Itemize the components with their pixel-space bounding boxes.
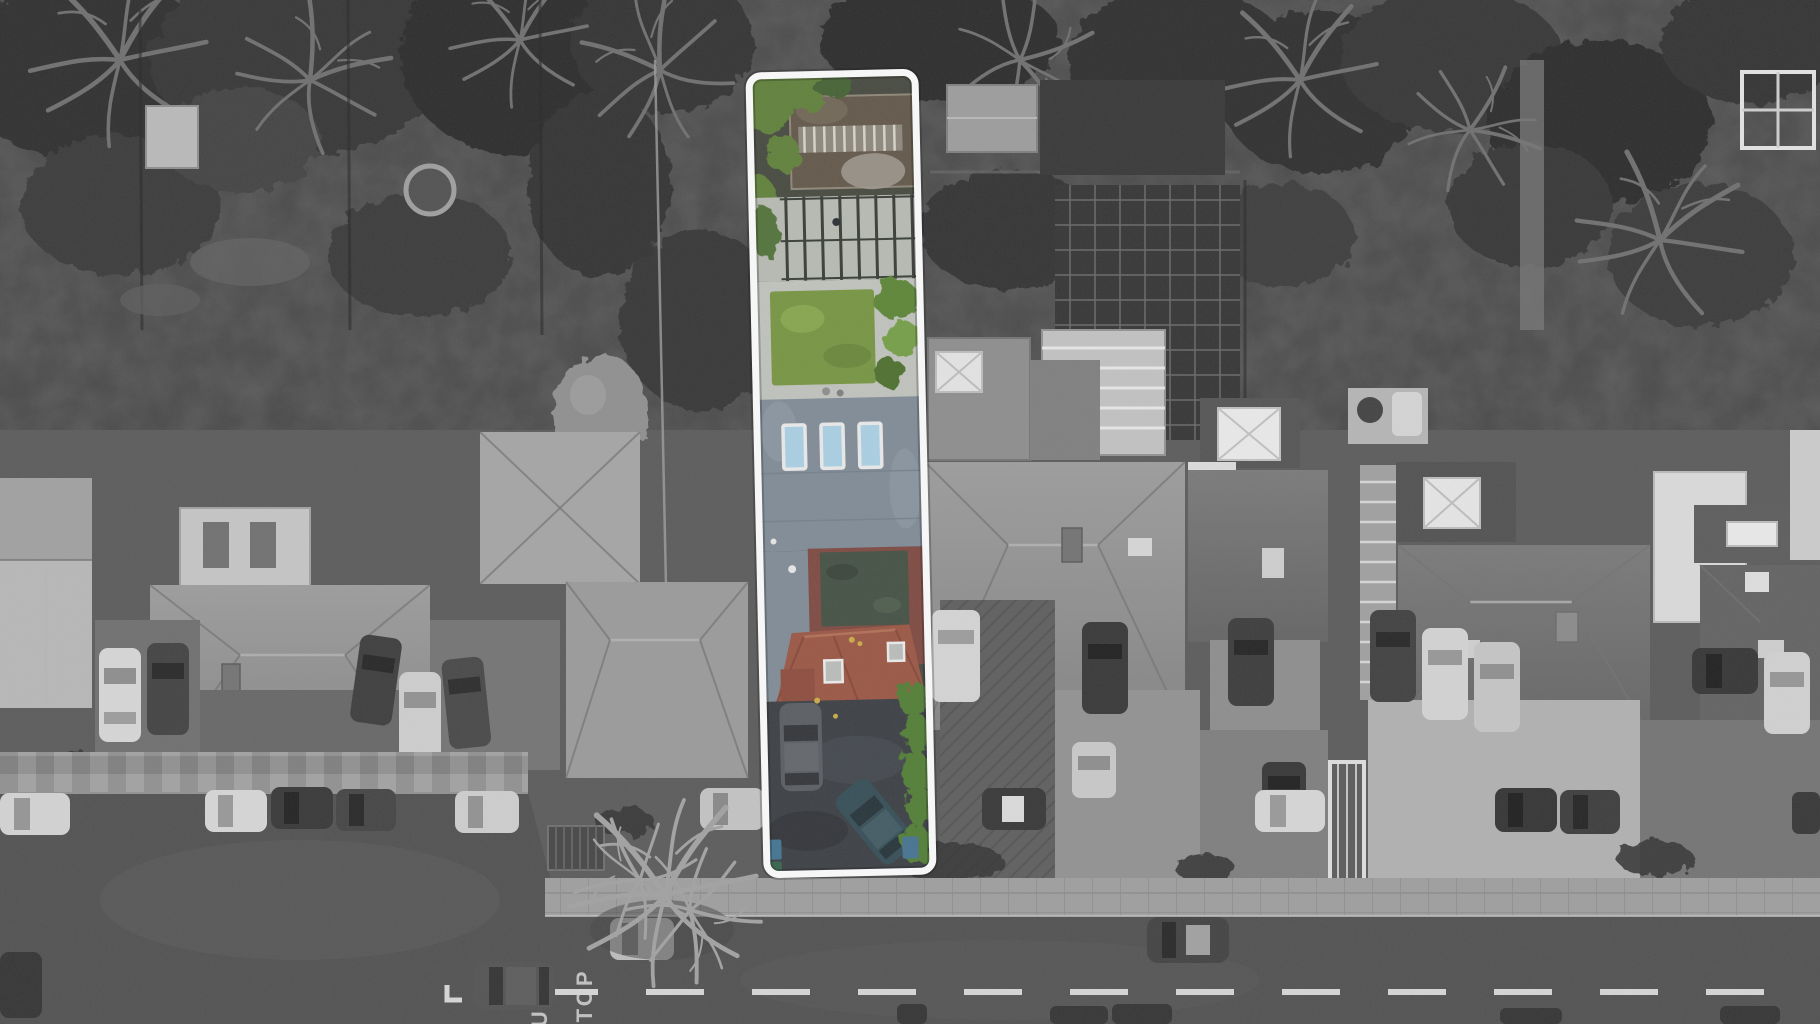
photo-grain xyxy=(0,0,1820,1024)
aerial-photo: BUS STOP xyxy=(0,0,1820,1024)
aerial-scene: BUS STOP xyxy=(0,0,1820,1024)
